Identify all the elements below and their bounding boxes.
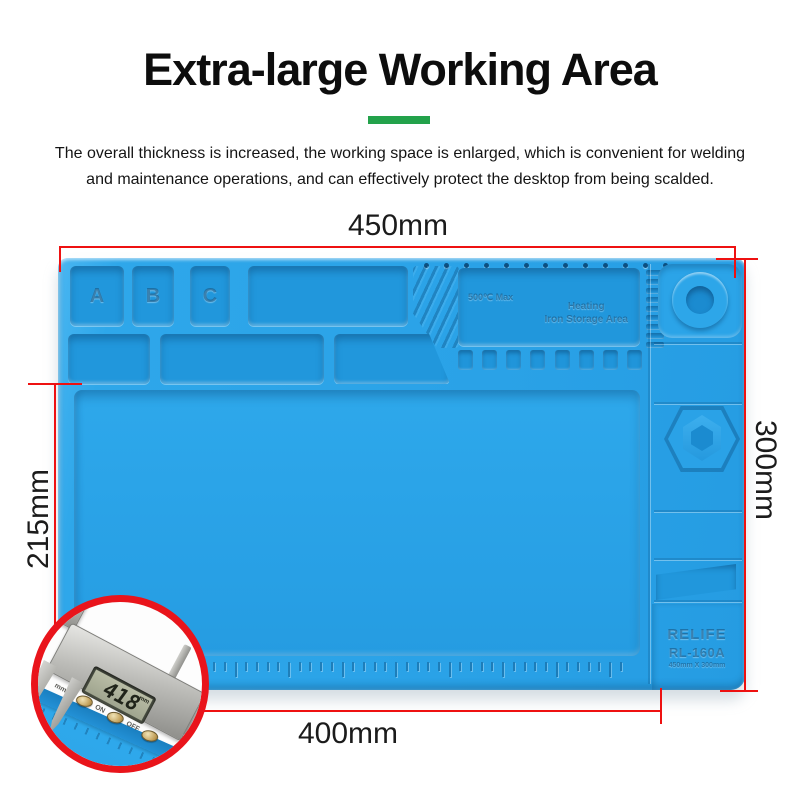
tray-c-label: C xyxy=(190,266,230,326)
ruler-tick xyxy=(342,662,344,677)
column-groove xyxy=(654,342,742,344)
tray-b-label: B xyxy=(132,266,174,326)
cup-ring xyxy=(672,272,728,328)
ruler-tick xyxy=(491,662,493,671)
ruler-tick xyxy=(277,662,279,671)
digital-caliper: 418 mm mm/in ON OFF xyxy=(31,600,209,773)
storage-area-label: Heating Iron Storage Area xyxy=(544,300,628,326)
ruler-tick xyxy=(609,662,611,677)
ruler-tick xyxy=(459,662,461,671)
ruler-tick xyxy=(449,662,451,677)
ruler-tick xyxy=(384,662,386,671)
bottom-slot xyxy=(579,350,594,370)
page-title: Extra-large Working Area xyxy=(0,44,800,96)
ruler-tick xyxy=(513,662,515,671)
brand-size-text: 450mm X 300mm xyxy=(669,662,726,669)
ruler-tick xyxy=(481,662,483,671)
brand-model-text: RL-160A xyxy=(669,645,725,660)
ruler-tick xyxy=(417,662,419,671)
column-groove xyxy=(654,558,742,560)
solder-paste-cup xyxy=(658,264,742,338)
top-hole xyxy=(603,263,608,268)
dim-top-line xyxy=(60,246,736,248)
ruler-tick xyxy=(556,662,558,677)
tray-row2-1 xyxy=(68,334,150,384)
top-hole xyxy=(484,263,489,268)
on-label: ON xyxy=(94,704,107,715)
top-hole xyxy=(464,263,469,268)
tray-a: A xyxy=(70,266,124,326)
ruler-tick xyxy=(309,662,311,671)
ruler-tick xyxy=(470,662,472,671)
storage-area-line1: Heating xyxy=(544,300,628,313)
ruler-tick xyxy=(620,662,622,671)
ruler-tick xyxy=(534,662,536,671)
bottom-slot xyxy=(555,350,570,370)
ruler-tick xyxy=(245,662,247,671)
ruler-tick xyxy=(598,662,600,671)
storage-temp-label: 500℃ Max xyxy=(468,292,513,303)
ruler-tick xyxy=(395,662,397,677)
ruler-tick xyxy=(406,662,408,671)
tray-wide xyxy=(248,266,408,326)
caliper-unit: mm xyxy=(138,695,150,705)
off-button xyxy=(140,729,159,744)
column-divider-groove xyxy=(648,264,650,684)
brand-block: RELIFE RL-160A 450mm X 300mm xyxy=(652,604,742,690)
dim-bottom-tick-right xyxy=(660,688,662,724)
page-description: The overall thickness is increased, the … xyxy=(50,141,750,193)
dim-bottom-line xyxy=(202,710,662,712)
top-hole xyxy=(543,263,548,268)
ruler-tick xyxy=(363,662,365,671)
ruler-tick xyxy=(267,662,269,671)
ruler-tick xyxy=(331,662,333,671)
dim-top-label: 450mm xyxy=(0,209,796,243)
ruler-tick xyxy=(566,662,568,671)
cup-center xyxy=(686,286,714,314)
tray-b: B xyxy=(132,266,174,326)
dim-left-line xyxy=(54,384,56,650)
bottom-slot xyxy=(627,350,642,370)
bottom-slot xyxy=(530,350,545,370)
title-underline xyxy=(368,116,430,124)
slanted-slot xyxy=(656,564,736,600)
ruler-tick xyxy=(224,662,226,671)
dim-left-label: 215mm xyxy=(22,463,54,575)
storage-area-line2: Iron Storage Area xyxy=(544,313,628,326)
ruler-tick xyxy=(588,662,590,671)
bottom-slot xyxy=(482,350,497,370)
ruler-tick xyxy=(235,662,237,677)
top-hole xyxy=(504,263,509,268)
ruler-tick xyxy=(374,662,376,671)
column-groove xyxy=(654,402,742,404)
top-hole xyxy=(623,263,628,268)
ruler-tick xyxy=(299,662,301,671)
ruler-tick xyxy=(545,662,547,671)
ruler-tick xyxy=(288,662,290,677)
bottom-slot xyxy=(603,350,618,370)
product-infographic: Extra-large Working Area The overall thi… xyxy=(0,0,800,800)
dim-top-tick-left xyxy=(59,246,61,272)
bit-slots-row xyxy=(458,350,642,370)
top-hole xyxy=(563,263,568,268)
ruler-tick xyxy=(213,662,215,671)
top-hole xyxy=(524,263,529,268)
bottom-slot xyxy=(458,350,473,370)
ruler-tick xyxy=(502,662,504,677)
top-hole xyxy=(583,263,588,268)
dim-right-line xyxy=(744,258,746,692)
bottom-slot xyxy=(506,350,521,370)
ruler-tick xyxy=(320,662,322,671)
ruler-tick xyxy=(577,662,579,671)
tray-a-label: A xyxy=(70,266,124,326)
tray-c: C xyxy=(190,266,230,326)
dim-right-label: 300mm xyxy=(748,420,782,520)
tray-row2-2 xyxy=(160,334,324,384)
column-groove xyxy=(654,510,742,512)
thickness-inset-circle: RL- 450mm × 418 mm mm/in ON OFF xyxy=(31,595,209,773)
dim-right-tick-top xyxy=(716,258,758,260)
ruler-tick xyxy=(352,662,354,671)
dim-left-tick-top xyxy=(28,383,82,385)
ruler-tick xyxy=(256,662,258,671)
brand-logo-text: RELIFE xyxy=(667,626,726,643)
ruler-tick xyxy=(438,662,440,671)
dim-right-tick-bottom xyxy=(720,690,758,692)
dim-bottom-label: 400mm xyxy=(248,717,448,751)
column-groove xyxy=(654,600,742,602)
ruler-tick xyxy=(524,662,526,671)
caliper-depth-rod xyxy=(168,644,192,680)
ruler-tick xyxy=(427,662,429,671)
iron-storage-tray: 500℃ Max Heating Iron Storage Area xyxy=(458,268,640,346)
dim-top-tick-right xyxy=(734,246,736,278)
